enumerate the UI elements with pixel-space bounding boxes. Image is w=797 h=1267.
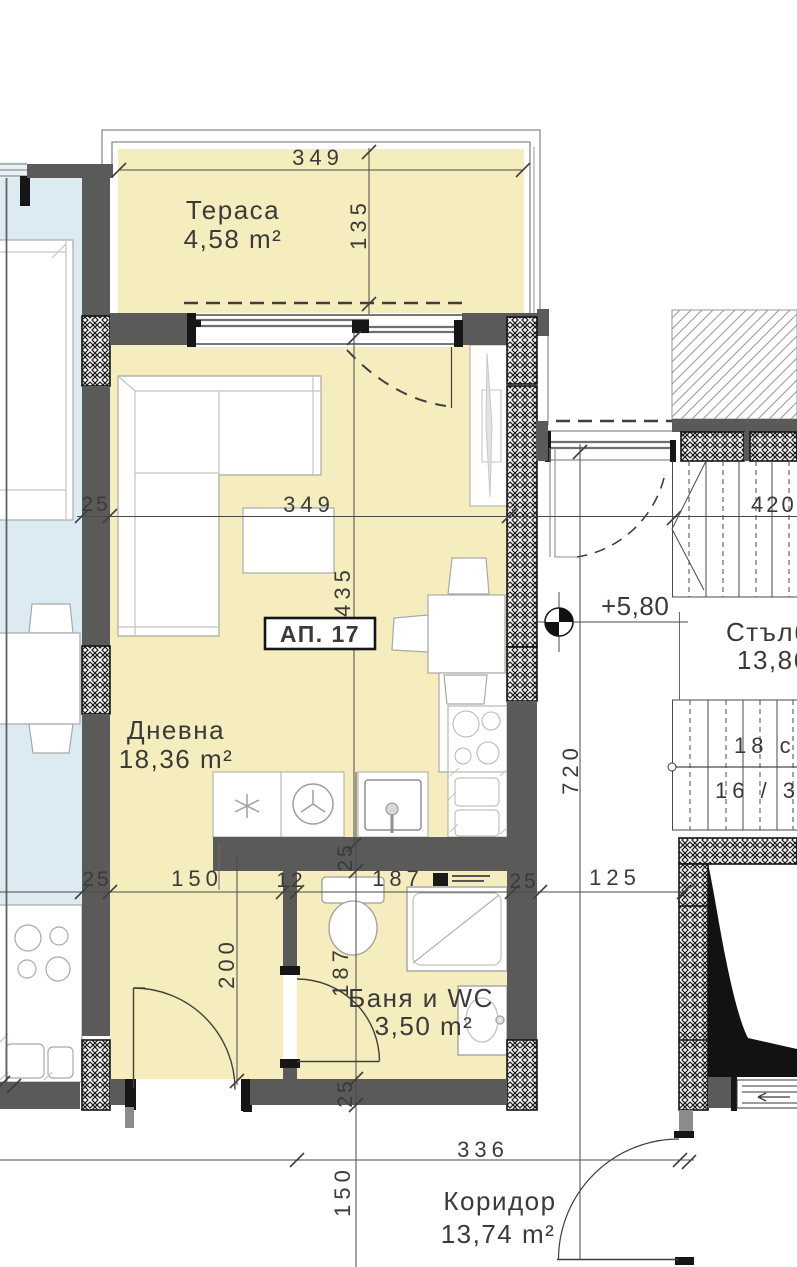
svg-text:135: 135 (346, 198, 371, 250)
svg-text:Дневна: Дневна (127, 715, 225, 745)
svg-text:25: 25 (509, 870, 538, 893)
svg-text:25: 25 (81, 493, 110, 516)
svg-text:420: 420 (751, 492, 797, 517)
svg-text:12: 12 (276, 869, 305, 892)
svg-text:Тераса: Тераса (186, 195, 280, 225)
svg-text:720: 720 (558, 743, 583, 795)
svg-text:18 с: 18 с (734, 733, 796, 758)
svg-text:125: 125 (589, 865, 641, 890)
svg-text:349: 349 (292, 145, 344, 170)
svg-text:3,50 m²: 3,50 m² (375, 1011, 474, 1041)
svg-text:+5,80: +5,80 (601, 591, 669, 621)
svg-text:435: 435 (330, 565, 355, 617)
svg-text:187: 187 (372, 866, 424, 891)
svg-text:13,86: 13,86 (737, 645, 797, 675)
svg-text:150: 150 (171, 866, 223, 891)
svg-text:200: 200 (214, 937, 239, 989)
svg-text:25: 25 (334, 842, 357, 871)
svg-text:25: 25 (334, 1078, 357, 1107)
svg-text:25: 25 (82, 868, 111, 891)
svg-text:16 / 30: 16 / 30 (715, 778, 797, 803)
svg-text:Баня и WC: Баня и WC (348, 983, 494, 1013)
svg-text:336: 336 (457, 1137, 509, 1162)
svg-text:Стълбище: Стълбище (726, 617, 797, 647)
svg-text:4,58 m²: 4,58 m² (184, 224, 283, 254)
svg-text:349: 349 (283, 492, 335, 517)
svg-text:АП. 17: АП. 17 (280, 621, 360, 647)
svg-text:Коридор: Коридор (443, 1186, 556, 1216)
svg-text:18,36 m²: 18,36 m² (119, 744, 234, 774)
svg-text:13,74 m²: 13,74 m² (441, 1219, 556, 1249)
svg-text:150: 150 (330, 1165, 355, 1217)
svg-text:187: 187 (328, 945, 353, 997)
